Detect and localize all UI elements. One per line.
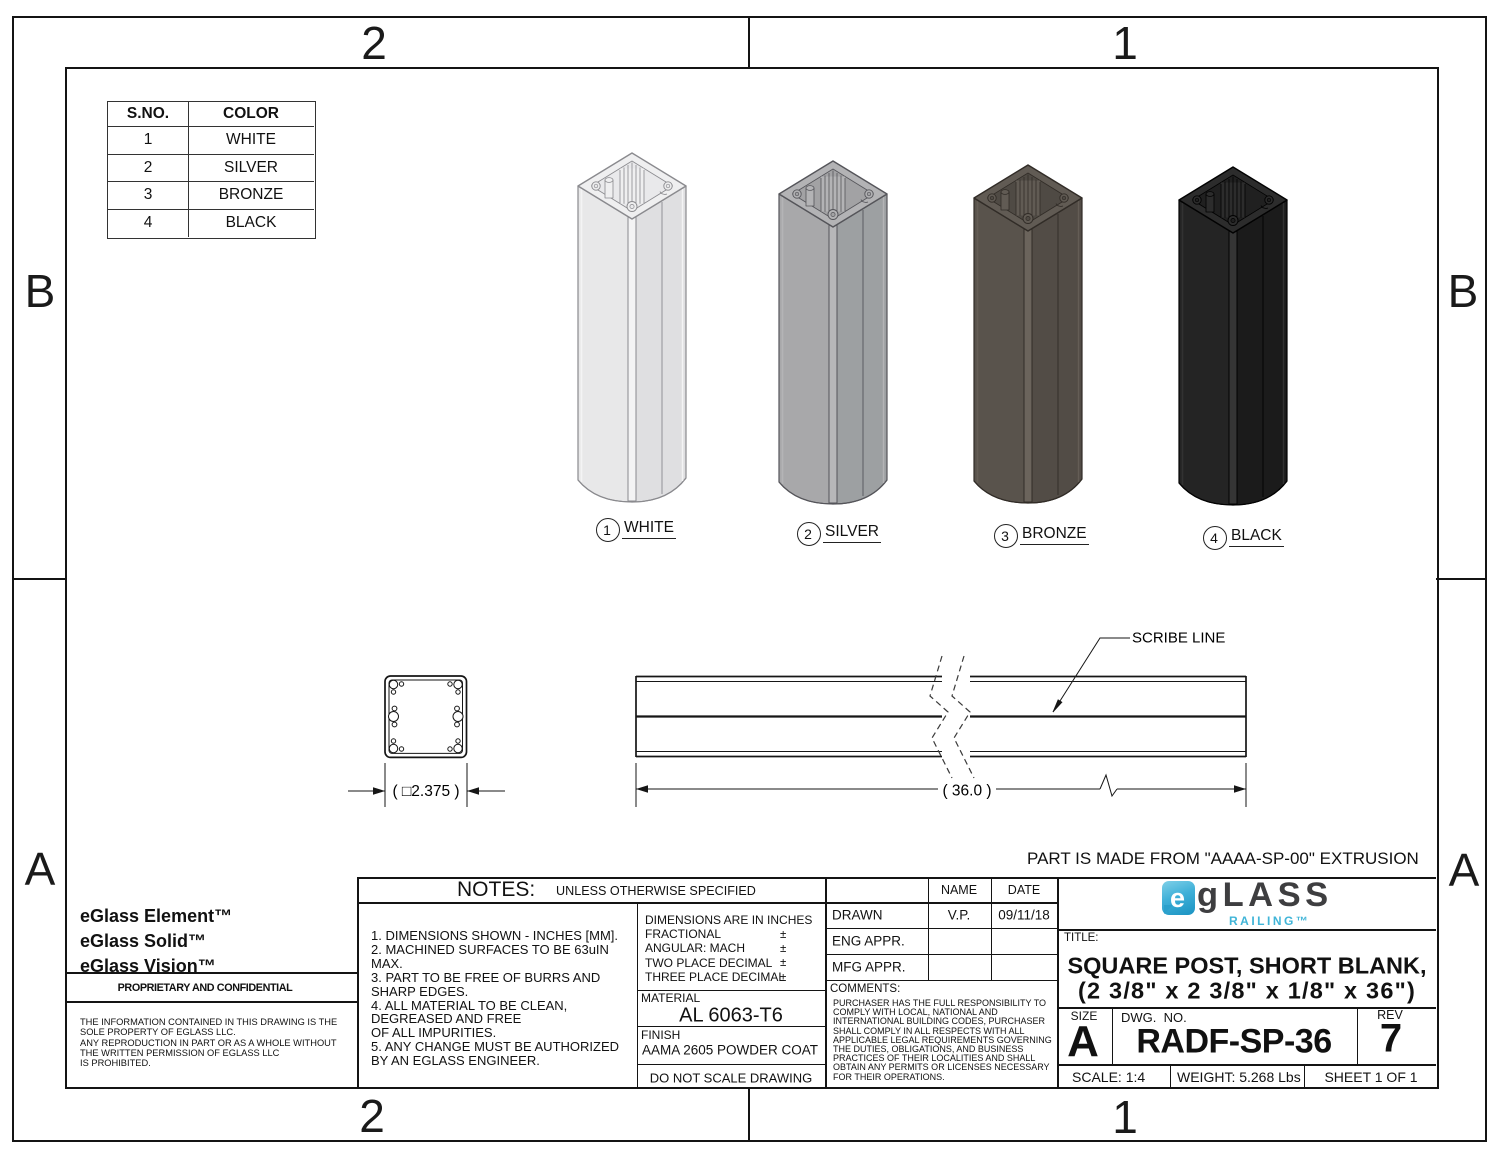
svg-text:( 36.0 ): ( 36.0 ) — [942, 783, 991, 800]
svg-text:( □2.375 ): ( □2.375 ) — [392, 783, 459, 800]
svg-text:SCRIBE LINE: SCRIBE LINE — [1132, 630, 1225, 647]
